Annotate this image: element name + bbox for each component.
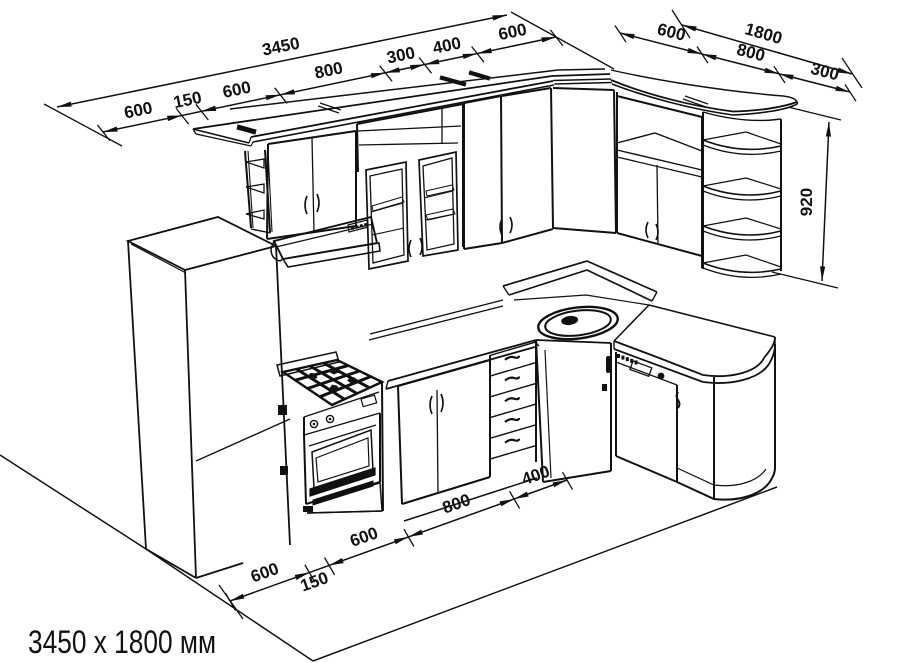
svg-text:920: 920 [797,188,816,216]
svg-text:3450 x 1800 мм: 3450 x 1800 мм [28,624,216,660]
